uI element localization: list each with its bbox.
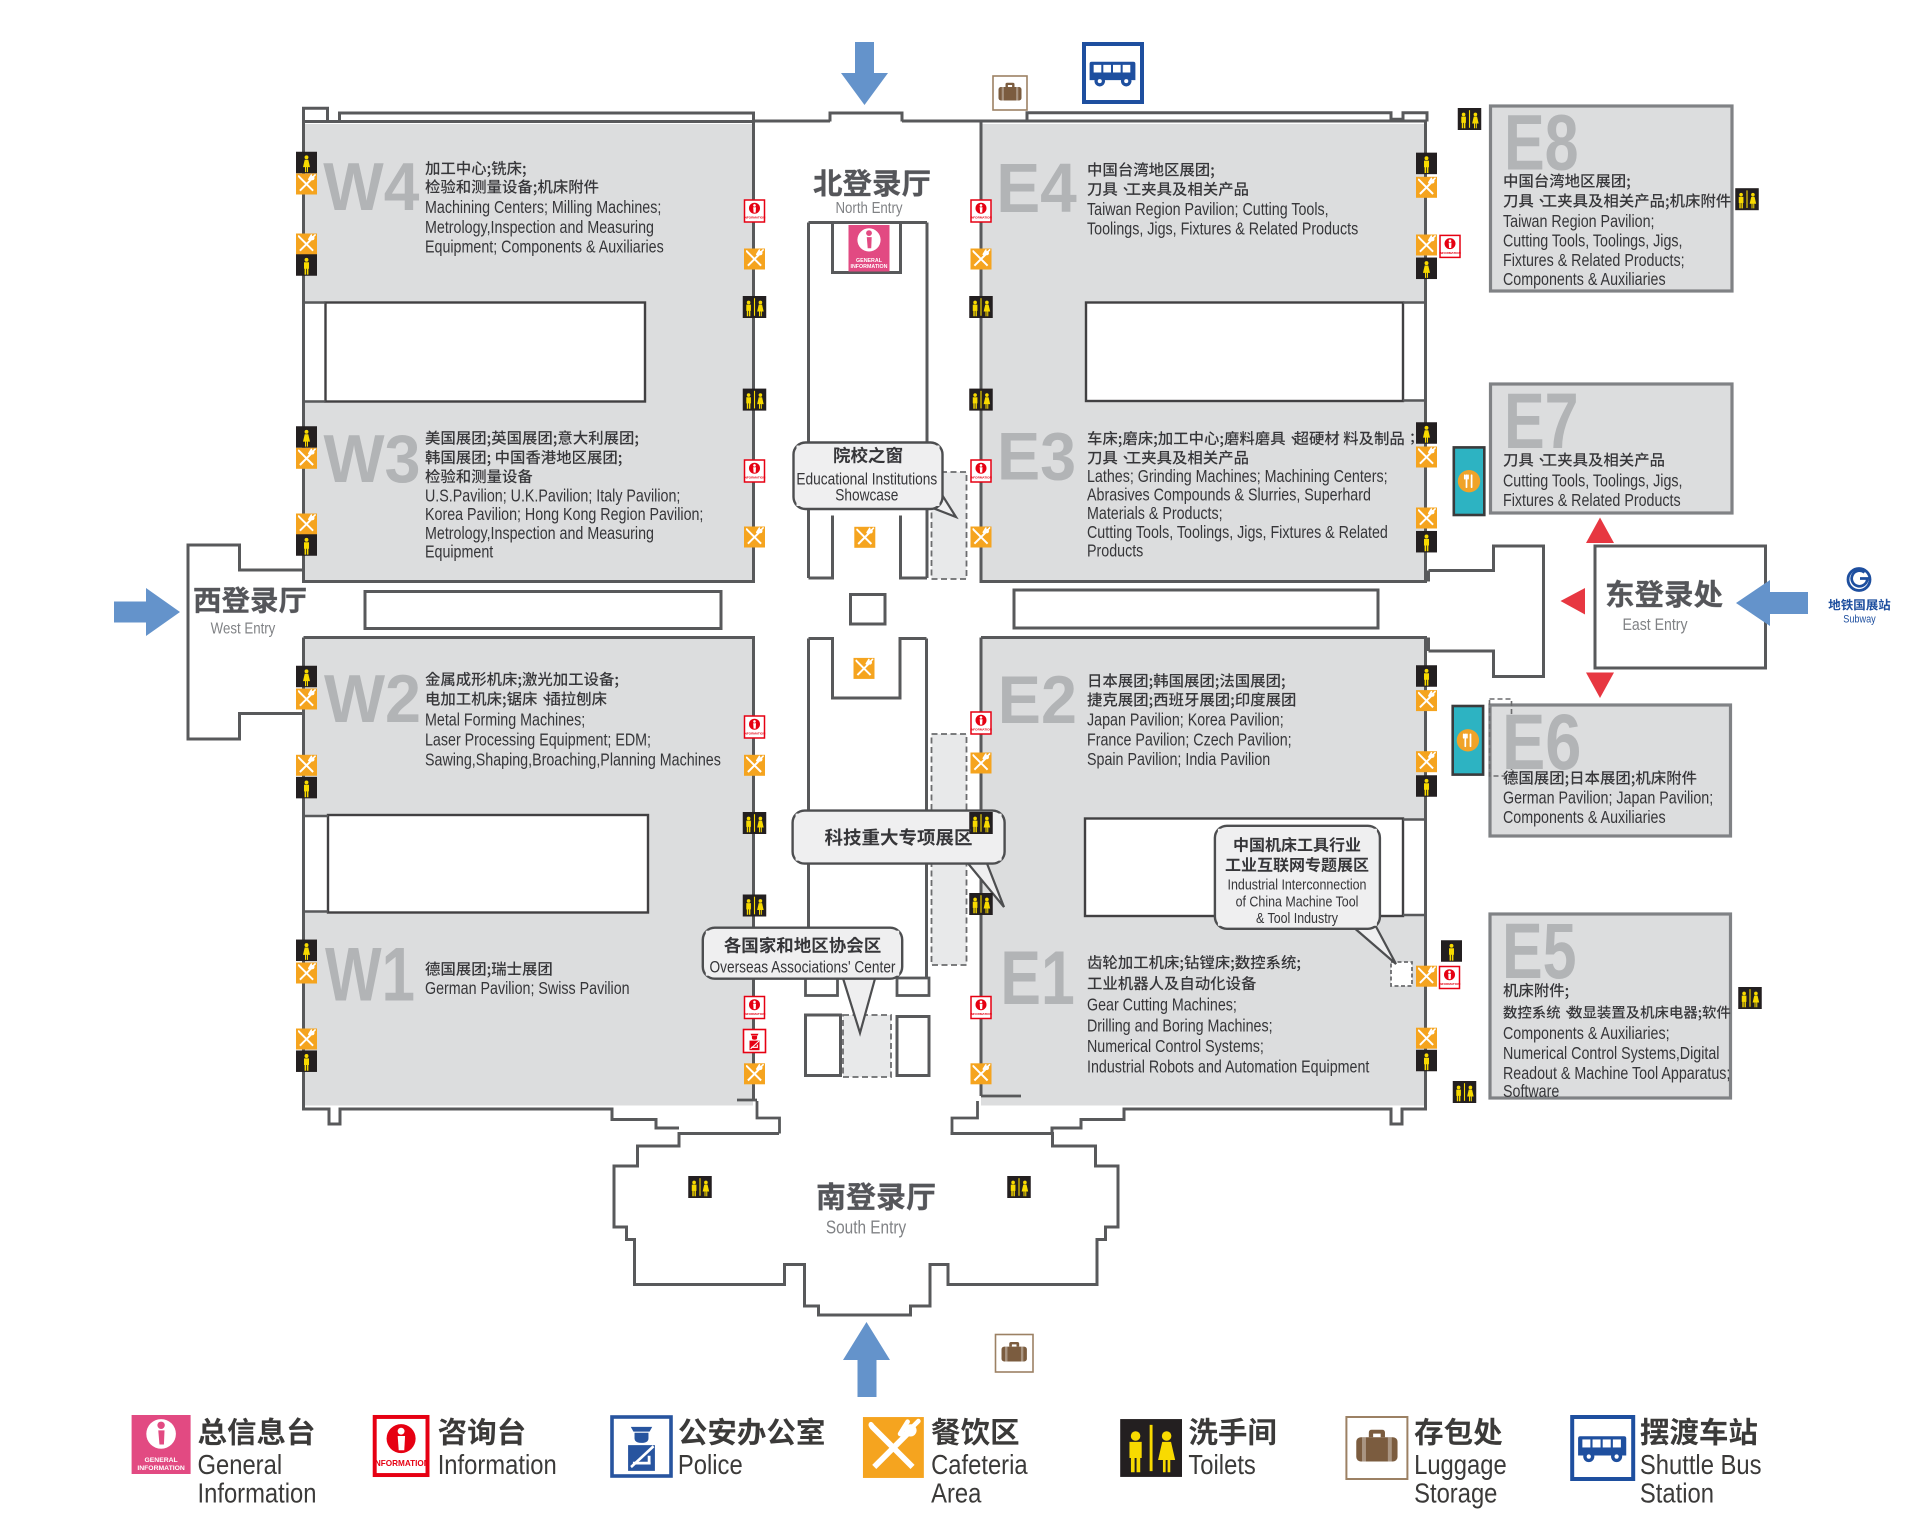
svg-text:Readout & Machine Tool Apparat: Readout & Machine Tool Apparatus; [1503, 1065, 1730, 1083]
svg-text:Taiwan Region Pavilion; Cuttin: Taiwan Region Pavilion; Cutting Tools, [1087, 201, 1329, 219]
svg-text:W1: W1 [325, 932, 415, 1018]
svg-text:E2: E2 [998, 663, 1077, 739]
svg-text:Toolings, Jigs, Fixtures & Rel: Toolings, Jigs, Fixtures & Related Produ… [1087, 220, 1358, 238]
svg-text:Taiwan Region Pavilion;: Taiwan Region Pavilion; [1503, 213, 1654, 231]
svg-text:Cutting Tools, Toolings, Jigs,: Cutting Tools, Toolings, Jigs, Fixtures … [1087, 524, 1388, 542]
svg-text:Components & Auxiliaries: Components & Auxiliaries [1503, 809, 1666, 827]
svg-text:Korea Pavilion; Hong Kong Regi: Korea Pavilion; Hong Kong Region Pavilio… [425, 506, 703, 524]
svg-text:Components & Auxiliaries: Components & Auxiliaries [1503, 271, 1666, 289]
svg-text:Numerical Control Systems;: Numerical Control Systems; [1087, 1038, 1264, 1056]
svg-text:E8: E8 [1504, 98, 1579, 187]
svg-text:Industrial Robots and Automati: Industrial Robots and Automation Equipme… [1087, 1058, 1370, 1076]
svg-text:Sawing,Shaping,Broaching,Plann: Sawing,Shaping,Broaching,Planning Machin… [425, 751, 721, 769]
svg-text:E3: E3 [997, 419, 1076, 495]
svg-text:E7: E7 [1504, 376, 1579, 465]
svg-text:Laser Processing Equipment; ED: Laser Processing Equipment; EDM; [425, 731, 651, 749]
svg-text:East Entry: East Entry [1622, 616, 1687, 634]
svg-text:U.S.Pavilion; U.K.Pavilion; It: U.S.Pavilion; U.K.Pavilion; Italy Pavili… [425, 488, 680, 506]
svg-text:North Entry: North Entry [835, 200, 903, 217]
svg-text:Overseas Associations' Center: Overseas Associations' Center [710, 958, 896, 976]
svg-text:E1: E1 [1000, 934, 1074, 1020]
svg-text:INFORMATION: INFORMATION [970, 728, 992, 732]
svg-text:Spain Pavilion; India Pavilion: Spain Pavilion; India Pavilion [1087, 751, 1270, 769]
svg-text:Japan Pavilion; Korea Pavilion: Japan Pavilion; Korea Pavilion; [1087, 712, 1284, 730]
svg-text:Metal Forming Machines;: Metal Forming Machines; [425, 711, 585, 729]
svg-text:INFORMATION: INFORMATION [970, 476, 992, 480]
svg-text:Metrology,Inspection and Measu: Metrology,Inspection and Measuring [425, 219, 654, 237]
svg-text:Abrasives Compounds & Slurries: Abrasives Compounds & Slurries, Superhar… [1087, 486, 1371, 504]
svg-text:Numerical Control Systems,Digi: Numerical Control Systems,Digital [1503, 1045, 1719, 1063]
svg-text:E4: E4 [996, 150, 1077, 227]
svg-text:Cutting Tools, Toolings, Jigs,: Cutting Tools, Toolings, Jigs, [1503, 232, 1683, 250]
svg-text:Products: Products [1087, 542, 1143, 560]
svg-text:INFORMATION: INFORMATION [1439, 251, 1461, 255]
svg-text:Showcase: Showcase [835, 486, 898, 504]
svg-text:E5: E5 [1502, 906, 1577, 995]
svg-text:W3: W3 [324, 422, 421, 498]
svg-text:West Entry: West Entry [211, 620, 276, 637]
svg-text:INFORMATION: INFORMATION [373, 1459, 430, 1468]
svg-text:Equipment; Components & Auxili: Equipment; Components & Auxiliaries [425, 238, 664, 256]
svg-text:Machining Centers; Milling Mac: Machining Centers; Milling Machines; [425, 199, 661, 217]
svg-text:W4: W4 [323, 149, 419, 225]
svg-text:Drilling and Boring Machines;: Drilling and Boring Machines; [1087, 1017, 1273, 1035]
svg-text:INFORMATION: INFORMATION [744, 732, 766, 736]
svg-text:INFORMATION: INFORMATION [744, 476, 766, 480]
svg-text:South Entry: South Entry [826, 1217, 907, 1238]
svg-text:INFORMATION: INFORMATION [851, 264, 888, 270]
svg-text:Information: Information [438, 1448, 557, 1480]
svg-text:INFORMATION: INFORMATION [1439, 982, 1461, 986]
svg-text:Gear Cutting Machines;: Gear Cutting Machines; [1087, 997, 1237, 1015]
svg-text:Area: Area [931, 1477, 982, 1509]
svg-text:Fixtures & Related Products;: Fixtures & Related Products; [1503, 252, 1685, 270]
svg-text:Subway: Subway [1843, 614, 1876, 626]
svg-text:Toilets: Toilets [1188, 1448, 1255, 1480]
svg-text:INFORMATION: INFORMATION [744, 216, 766, 220]
svg-text:German Pavilion; Japan Pavilio: German Pavilion; Japan Pavilion; [1503, 790, 1713, 808]
svg-text:& Tool Industry: & Tool Industry [1256, 910, 1338, 926]
svg-text:Industrial Interconnection: Industrial Interconnection [1228, 876, 1367, 892]
svg-text:Police: Police [678, 1448, 743, 1480]
svg-text:France Pavilion; Czech Pavilio: France Pavilion; Czech Pavilion; [1087, 731, 1292, 749]
svg-text:German Pavilion; Swiss Pavilio: German Pavilion; Swiss Pavilion [425, 980, 630, 998]
svg-text:INFORMATION: INFORMATION [744, 1012, 766, 1016]
svg-text:GENERAL: GENERAL [144, 1457, 177, 1464]
svg-text:W2: W2 [324, 662, 421, 738]
svg-text:Storage: Storage [1414, 1477, 1497, 1509]
svg-text:INFORMATION: INFORMATION [970, 1012, 992, 1016]
svg-text:Equipment: Equipment [425, 544, 494, 562]
svg-text:INFORMATION: INFORMATION [137, 1465, 185, 1472]
svg-text:Lathes; Grinding Machines; Mac: Lathes; Grinding Machines; Machining Cen… [1087, 468, 1388, 486]
svg-text:E6: E6 [1502, 698, 1581, 787]
svg-text:Cutting Tools, Toolings, Jigs,: Cutting Tools, Toolings, Jigs, [1503, 472, 1683, 490]
svg-text:INFORMATION: INFORMATION [970, 216, 992, 220]
svg-text:Software: Software [1503, 1083, 1559, 1101]
svg-text:Metrology,Inspection and Measu: Metrology,Inspection and Measuring [425, 525, 654, 543]
svg-text:Information: Information [198, 1477, 317, 1509]
svg-text:Components & Auxiliaries;: Components & Auxiliaries; [1503, 1025, 1670, 1043]
svg-text:Fixtures & Related Products: Fixtures & Related Products [1503, 492, 1681, 510]
svg-text:Station: Station [1640, 1477, 1714, 1509]
svg-text:of China Machine Tool: of China Machine Tool [1236, 893, 1359, 909]
svg-text:Materials & Products;: Materials & Products; [1087, 505, 1223, 523]
